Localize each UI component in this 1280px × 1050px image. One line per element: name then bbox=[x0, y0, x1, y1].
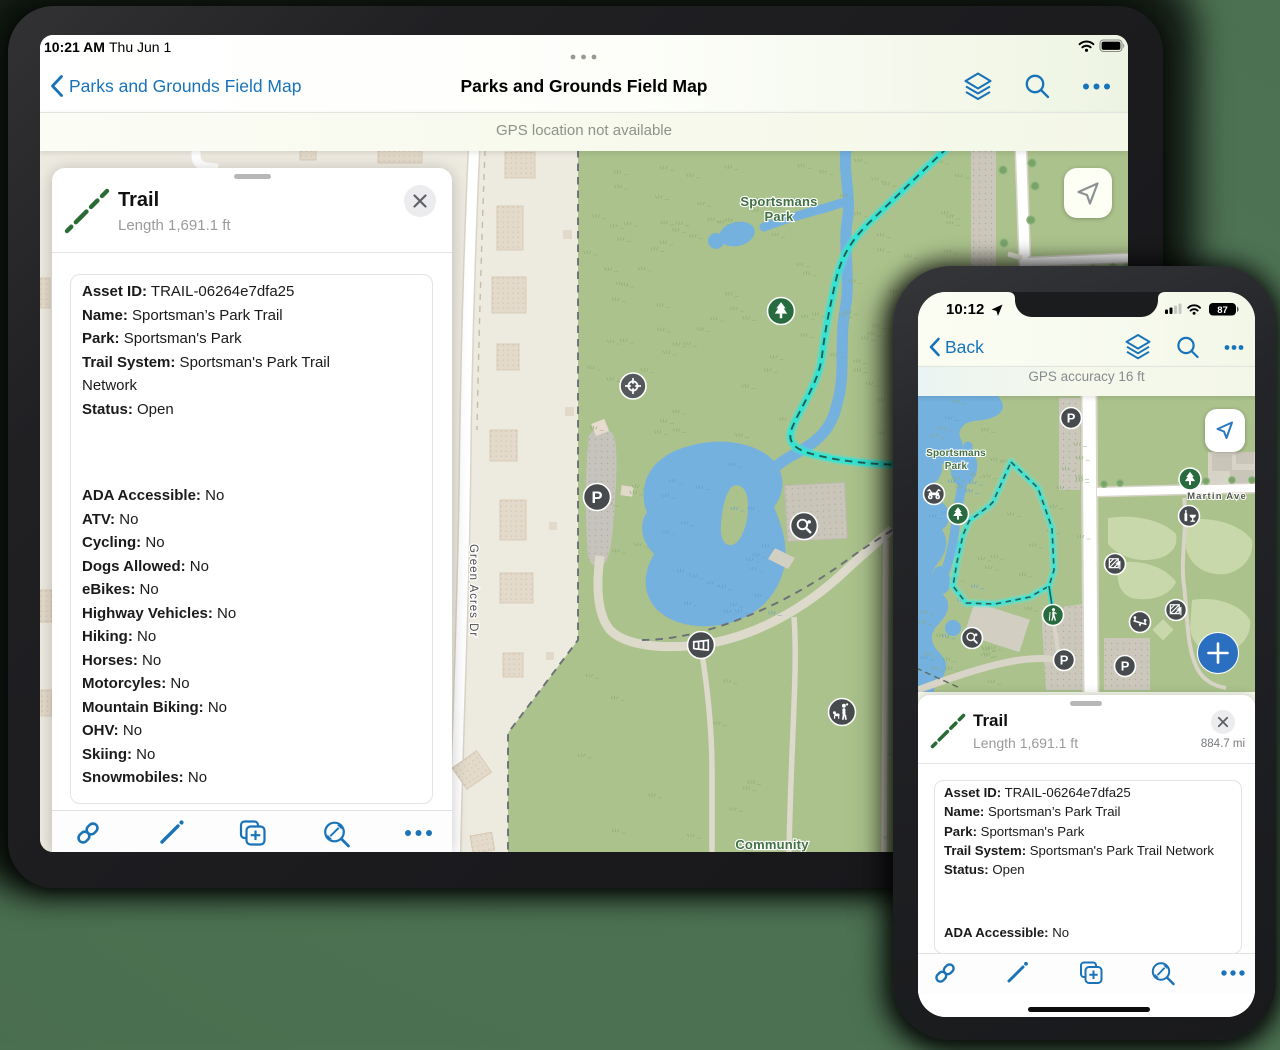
svg-text:Sportsmans: Sportsmans bbox=[740, 194, 817, 209]
svg-text:Martin Ave: Martin Ave bbox=[1187, 491, 1247, 502]
svg-text:87: 87 bbox=[1217, 305, 1228, 316]
svg-text:Park: Park bbox=[945, 461, 968, 472]
svg-text:Community: Community bbox=[735, 837, 809, 852]
svg-text:Park: Park bbox=[765, 209, 795, 224]
svg-text:P: P bbox=[591, 488, 602, 507]
svg-text:P: P bbox=[1121, 659, 1130, 674]
svg-text:Sportsmans: Sportsmans bbox=[926, 448, 986, 459]
svg-text:P: P bbox=[1060, 653, 1069, 668]
svg-text:P: P bbox=[1067, 411, 1076, 426]
svg-text:Green Acres Dr: Green Acres Dr bbox=[467, 544, 479, 637]
